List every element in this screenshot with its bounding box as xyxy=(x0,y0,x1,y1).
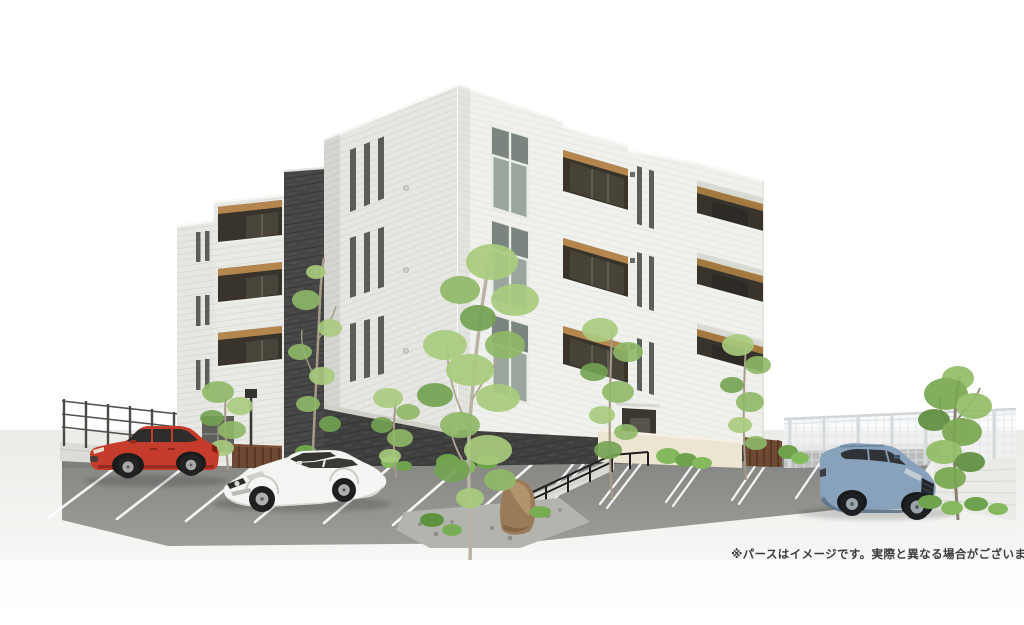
left-wing-balconies xyxy=(218,200,282,367)
entrance-canopy xyxy=(616,404,660,406)
front-face-slit-windows xyxy=(350,136,384,382)
ground-fade xyxy=(0,560,1024,625)
disclaimer-text: ※パースはイメージです。実際と異なる場合がございます。 xyxy=(731,547,1024,561)
red-suv-mirror xyxy=(131,440,136,444)
front-face xyxy=(324,85,458,466)
exterior-rendering-image: ※パースはイメージです。実際と異なる場合がございます。 xyxy=(0,0,1024,625)
blue-suv-roof-rail xyxy=(840,446,884,447)
blue-suv-mirror xyxy=(894,455,900,459)
white-sedan-emblem xyxy=(234,481,239,486)
exterior-rendering-page: ※パースはイメージです。実際と異なる場合がございます。 xyxy=(0,0,1024,625)
core-shadow-on-face xyxy=(324,134,340,408)
tall-window-4f xyxy=(492,127,528,219)
white-sedan-mirror xyxy=(297,461,302,465)
